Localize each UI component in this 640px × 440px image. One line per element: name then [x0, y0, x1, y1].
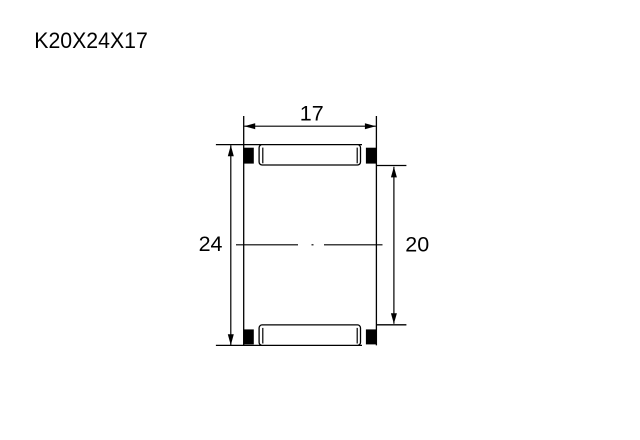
svg-text:24: 24: [199, 232, 223, 256]
svg-text:20: 20: [405, 232, 429, 256]
svg-text:17: 17: [300, 102, 324, 126]
svg-text:K20X24X17: K20X24X17: [34, 28, 148, 53]
